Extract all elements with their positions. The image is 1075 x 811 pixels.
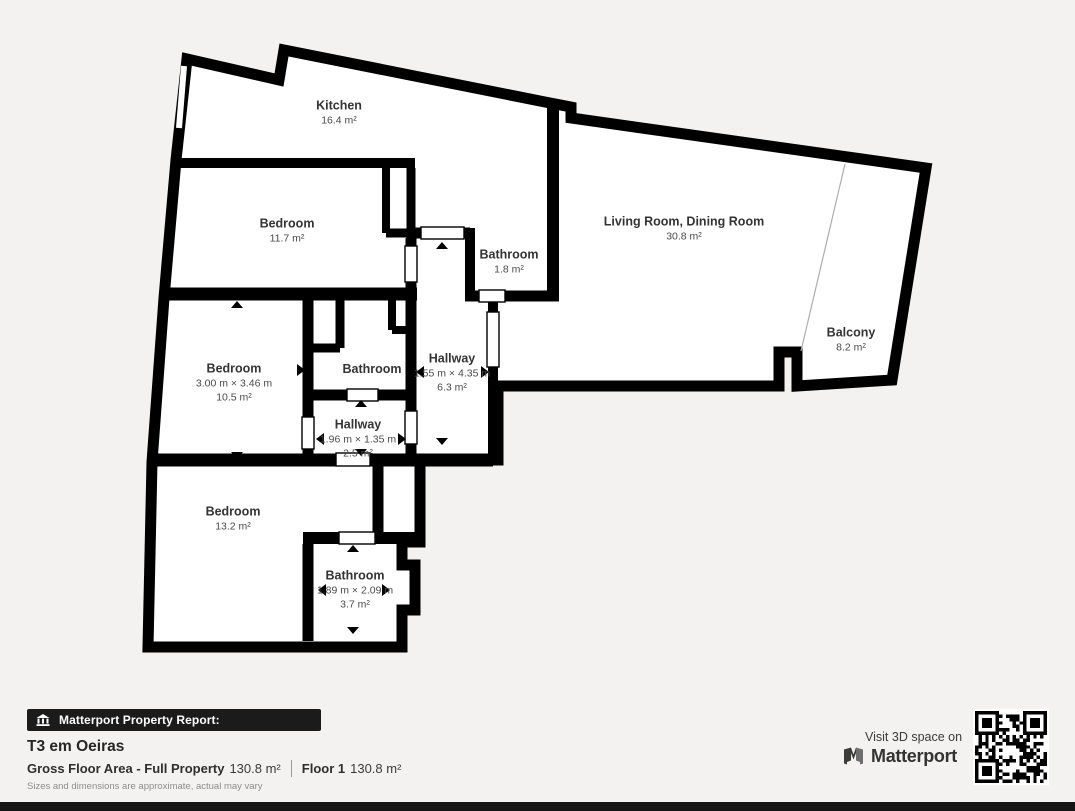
matterport-m-icon xyxy=(843,747,864,767)
disclaimer-text: Sizes and dimensions are approximate, ac… xyxy=(27,781,263,792)
gross-floor-area-label: Gross Floor Area - Full Property xyxy=(27,761,224,776)
visit-3d-space-text: Visit 3D space on xyxy=(865,730,958,744)
building-icon xyxy=(36,714,50,726)
floor-area-metrics: Gross Floor Area - Full Property 130.8 m… xyxy=(27,760,401,777)
matterport-wordmark: Matterport xyxy=(871,746,957,767)
bottom-bar xyxy=(0,802,1075,811)
report-badge-label: Matterport Property Report: xyxy=(59,713,220,727)
report-badge: Matterport Property Report: xyxy=(27,709,321,731)
exterior-walls xyxy=(148,50,926,647)
floor-label: Floor 1 xyxy=(302,761,345,776)
gross-floor-area-value: 130.8 m² xyxy=(229,761,280,776)
floor-plan: Kitchen 16.4 m² Bedroom 11.7 m² Living R… xyxy=(0,0,1075,811)
property-title: T3 em Oeiras xyxy=(27,738,124,756)
floor-value: 130.8 m² xyxy=(350,761,401,776)
qr-code xyxy=(973,709,1049,785)
floor-plan-drawing xyxy=(0,0,1075,811)
divider xyxy=(291,760,292,777)
matterport-logo: Matterport xyxy=(843,746,957,767)
